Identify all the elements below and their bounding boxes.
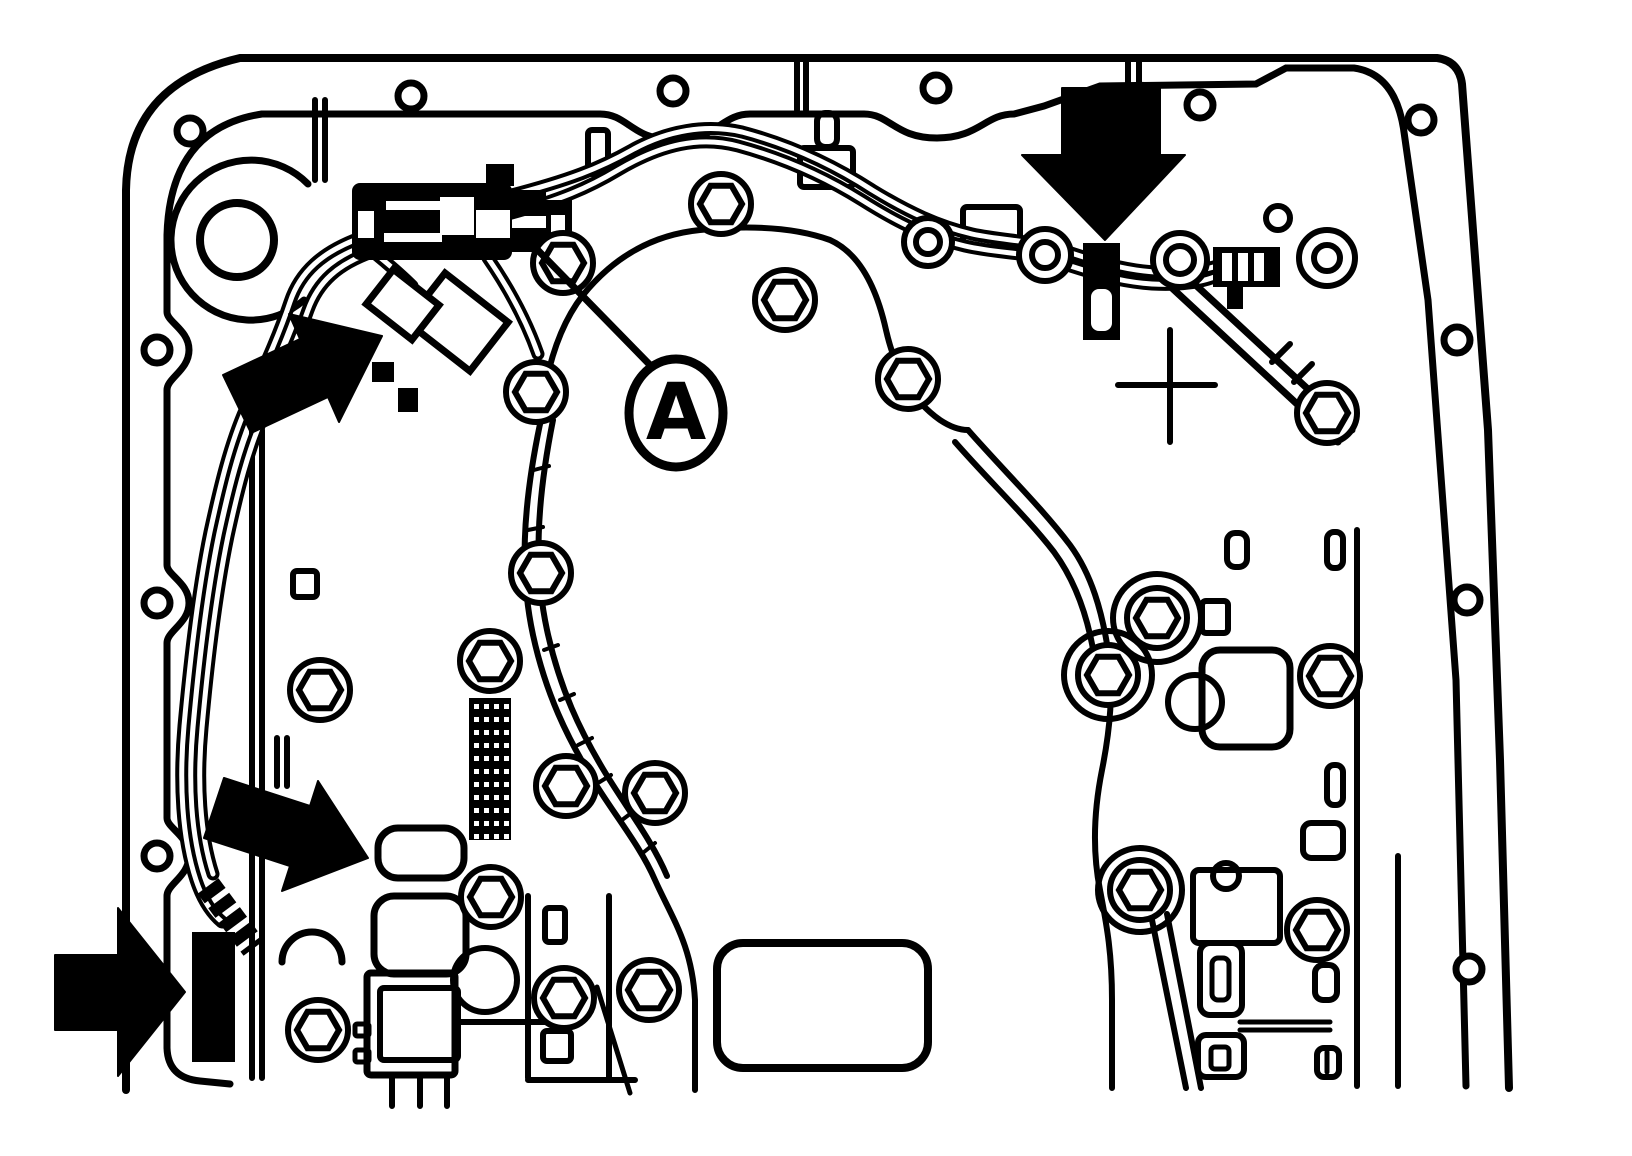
- pin-grid-dot: [504, 717, 509, 722]
- round-bolt-outer: [1019, 229, 1071, 281]
- connector-slot: [384, 233, 442, 242]
- pin-grid-dot: [474, 769, 479, 774]
- bolt-hole: [177, 118, 203, 144]
- pin-grid-dot: [494, 795, 499, 800]
- bolt-hole: [1456, 956, 1482, 982]
- pin-grid-dot: [504, 756, 509, 761]
- pin-grid-dot: [484, 743, 489, 748]
- pin-grid-dot: [484, 821, 489, 826]
- pin-grid-dot: [494, 743, 499, 748]
- bolt-hole: [1187, 92, 1213, 118]
- pin-grid-dot: [484, 769, 489, 774]
- connector-slot: [358, 211, 374, 238]
- pin-grid-dot: [504, 704, 509, 709]
- pin-grid-dot: [504, 743, 509, 748]
- connector-tab: [512, 190, 546, 216]
- pin-grid-dot: [504, 834, 509, 839]
- bolt-hole: [1454, 587, 1480, 613]
- pin-grid-dot: [504, 808, 509, 813]
- pin-grid-dot: [474, 834, 479, 839]
- pin-grid-dot: [494, 808, 499, 813]
- pin-grid-dot: [474, 795, 479, 800]
- bolt-hole: [144, 843, 170, 869]
- connector-slot: [386, 201, 442, 210]
- bolt-hole: [1408, 107, 1434, 133]
- connector-wing: [486, 164, 514, 186]
- pin-grid-dot: [474, 717, 479, 722]
- bolt-hole: [144, 337, 170, 363]
- harness-connector-right: [1083, 243, 1120, 340]
- pin-grid-dot: [484, 717, 489, 722]
- pin-grid-block: [469, 698, 511, 840]
- pin-grid-dot: [474, 704, 479, 709]
- pin-grid-dot: [494, 704, 499, 709]
- pin-grid-dot: [494, 756, 499, 761]
- filled-part: [372, 362, 394, 382]
- pin-grid-dot: [494, 821, 499, 826]
- pin-grid-dot: [504, 795, 509, 800]
- comb-slot: [1222, 253, 1232, 281]
- pin-grid-dot: [494, 782, 499, 787]
- valve-body-diagram: A: [0, 0, 1632, 1156]
- pin-grid-dot: [484, 795, 489, 800]
- pin-grid-dot: [494, 717, 499, 722]
- comb-slot: [1238, 253, 1248, 281]
- round-bolt-outer: [1299, 230, 1355, 286]
- pin-grid-dot: [474, 756, 479, 761]
- pin-grid-dot: [484, 756, 489, 761]
- pin-grid-dot: [474, 782, 479, 787]
- pin-grid-dot: [504, 730, 509, 735]
- pin-grid-dot: [494, 730, 499, 735]
- pin-grid-dot: [504, 821, 509, 826]
- bolt-hole: [923, 75, 949, 101]
- pin-grid-dot: [474, 730, 479, 735]
- diagram-page: A: [0, 0, 1632, 1156]
- bolt-hole: [660, 78, 686, 104]
- pin-grid-dot: [504, 782, 509, 787]
- bolt-hole: [1444, 327, 1470, 353]
- callout-letter: A: [646, 368, 706, 458]
- pin-grid-dot: [484, 834, 489, 839]
- bolt-hole: [144, 590, 170, 616]
- round-bolt-outer: [904, 218, 952, 266]
- connector-slot: [476, 210, 510, 238]
- filled-part: [192, 932, 235, 1062]
- connector-slot: [440, 197, 474, 235]
- round-bolt-outer: [1153, 233, 1207, 287]
- pin-grid-dot: [504, 769, 509, 774]
- pin-grid-dot: [494, 834, 499, 839]
- comb-stub: [1227, 287, 1243, 309]
- pin-grid-dot: [484, 704, 489, 709]
- comb-slot: [1254, 253, 1264, 281]
- connector-slot: [1091, 289, 1112, 331]
- pin-grid-dot: [474, 743, 479, 748]
- pin-grid-dot: [474, 821, 479, 826]
- bolt-hole: [398, 83, 424, 109]
- pin-grid-dot: [494, 769, 499, 774]
- pin-grid-dot: [484, 782, 489, 787]
- pin-grid-dot: [474, 808, 479, 813]
- pin-grid-dot: [484, 808, 489, 813]
- filled-part: [398, 388, 418, 412]
- pin-grid-dot: [484, 730, 489, 735]
